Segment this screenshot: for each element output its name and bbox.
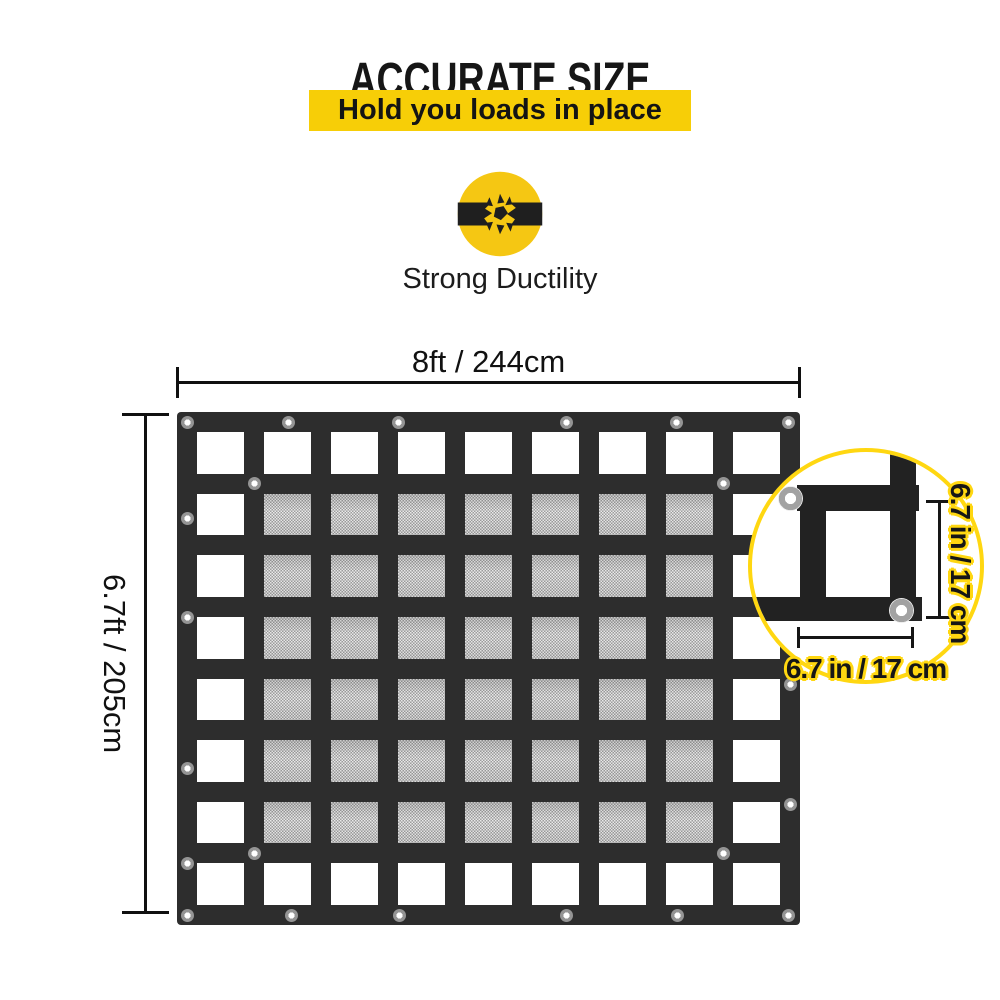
grommet-icon [181, 762, 194, 775]
grommet-icon [560, 416, 573, 429]
net-mesh-cell [666, 617, 713, 659]
grommet-icon [181, 611, 194, 624]
net-mesh-cell [264, 617, 311, 659]
net-mesh-cell [331, 617, 378, 659]
net-mesh-cell [599, 802, 646, 844]
subtitle-text: Hold you loads in place [338, 94, 662, 127]
net-open-cell [599, 432, 646, 474]
detail-vertical-dimension-line [938, 502, 941, 618]
detail-horizontal-dimension-line [797, 636, 914, 639]
net-mesh-cell [398, 679, 445, 721]
net-open-cell [733, 432, 780, 474]
width-dimension-label: 8ft / 244cm [177, 344, 800, 380]
net-mesh-cell [532, 494, 579, 536]
net-open-cell [465, 432, 512, 474]
width-dimension-line [176, 381, 801, 384]
net-open-cell [532, 432, 579, 474]
net-mesh-cell [264, 802, 311, 844]
grommet-icon [282, 416, 295, 429]
net-mesh-cell [465, 555, 512, 597]
grommet-icon [181, 909, 194, 922]
net-open-cell [197, 432, 244, 474]
grommet-icon [784, 798, 797, 811]
grommet-icon [782, 909, 795, 922]
net-mesh-cell [398, 494, 445, 536]
grommet-icon [181, 512, 194, 525]
net-open-cell [398, 863, 445, 905]
grommet-icon [248, 847, 261, 860]
net-mesh-cell [331, 740, 378, 782]
height-dimension-line [144, 415, 147, 913]
net-mesh-cell [331, 679, 378, 721]
net-open-cell [197, 617, 244, 659]
grommet-icon [393, 909, 406, 922]
net-mesh-cell [599, 679, 646, 721]
net-mesh-cell [398, 802, 445, 844]
net-mesh-cell [465, 802, 512, 844]
net-mesh-cell [666, 494, 713, 536]
height-dimension-cap-bottom [122, 911, 169, 914]
net-open-cell [197, 802, 244, 844]
net-open-cell [733, 802, 780, 844]
detail-webbing-right [890, 448, 916, 621]
detail-webbing-left [800, 485, 826, 621]
grommet-icon [717, 477, 730, 490]
width-dimension-cap-left [176, 367, 179, 398]
product-infographic: ACCURATE SIZE Hold you loads in place St… [0, 0, 1000, 1000]
net-open-cell [197, 555, 244, 597]
net-mesh-cell [264, 555, 311, 597]
net-mesh-cell [666, 802, 713, 844]
net-mesh-cell [666, 679, 713, 721]
net-open-cell [532, 863, 579, 905]
net-mesh-cell [398, 740, 445, 782]
net-open-cell [666, 863, 713, 905]
cargo-net-illustration [177, 412, 800, 925]
grommet-icon [392, 416, 405, 429]
detail-vertical-label: 6.7 in / 17 cm [944, 477, 976, 649]
feature-label: Strong Ductility [0, 263, 1000, 296]
net-open-cell [197, 679, 244, 721]
net-open-cell [599, 863, 646, 905]
width-dimension-cap-right [798, 367, 801, 398]
net-mesh-cell [331, 802, 378, 844]
net-mesh-cell [264, 740, 311, 782]
net-mesh-cell [465, 679, 512, 721]
net-mesh-cell [599, 740, 646, 782]
net-mesh-cell [465, 494, 512, 536]
subtitle-banner: Hold you loads in place [309, 90, 691, 131]
net-open-cell [197, 863, 244, 905]
detail-horizontal-cap-left [797, 627, 800, 648]
height-dimension-cap-top [122, 413, 169, 416]
net-open-cell [264, 432, 311, 474]
breaking-strap-icon [456, 170, 544, 258]
grommet-icon [248, 477, 261, 490]
net-mesh-cell [666, 555, 713, 597]
net-mesh-cell [532, 555, 579, 597]
net-open-cell [197, 740, 244, 782]
net-mesh-cell [398, 617, 445, 659]
net-open-cell [264, 863, 311, 905]
height-dimension-label: 6.7ft / 205cm [96, 415, 132, 913]
net-mesh-cell [465, 740, 512, 782]
net-open-cell [331, 863, 378, 905]
net-open-cell [733, 863, 780, 905]
net-mesh-cell [532, 802, 579, 844]
grommet-icon [782, 416, 795, 429]
detail-horizontal-label: 6.7 in / 17 cm [740, 653, 992, 685]
detail-horizontal-cap-right [911, 627, 914, 648]
net-open-cell [733, 740, 780, 782]
net-mesh-cell [465, 617, 512, 659]
net-open-cell [465, 863, 512, 905]
grommet-icon [181, 416, 194, 429]
net-mesh-cell [599, 494, 646, 536]
grommet-icon [778, 486, 803, 511]
grommet-icon [670, 416, 683, 429]
net-mesh-cell [532, 617, 579, 659]
net-mesh-cell [599, 555, 646, 597]
net-mesh-cell [398, 555, 445, 597]
net-mesh-cell [264, 679, 311, 721]
net-open-cell [666, 432, 713, 474]
net-mesh-cell [532, 740, 579, 782]
grommet-icon [717, 847, 730, 860]
net-mesh-cell [599, 617, 646, 659]
net-mesh-cell [331, 494, 378, 536]
grommet-icon [671, 909, 684, 922]
net-mesh-cell [666, 740, 713, 782]
net-mesh-cell [264, 494, 311, 536]
net-mesh-cell [532, 679, 579, 721]
net-open-cell [331, 432, 378, 474]
net-open-cell [398, 432, 445, 474]
net-mesh-cell [331, 555, 378, 597]
grommet-icon [560, 909, 573, 922]
grommet-icon [181, 857, 194, 870]
grommet-icon [889, 598, 914, 623]
net-open-cell [197, 494, 244, 536]
grommet-icon [285, 909, 298, 922]
